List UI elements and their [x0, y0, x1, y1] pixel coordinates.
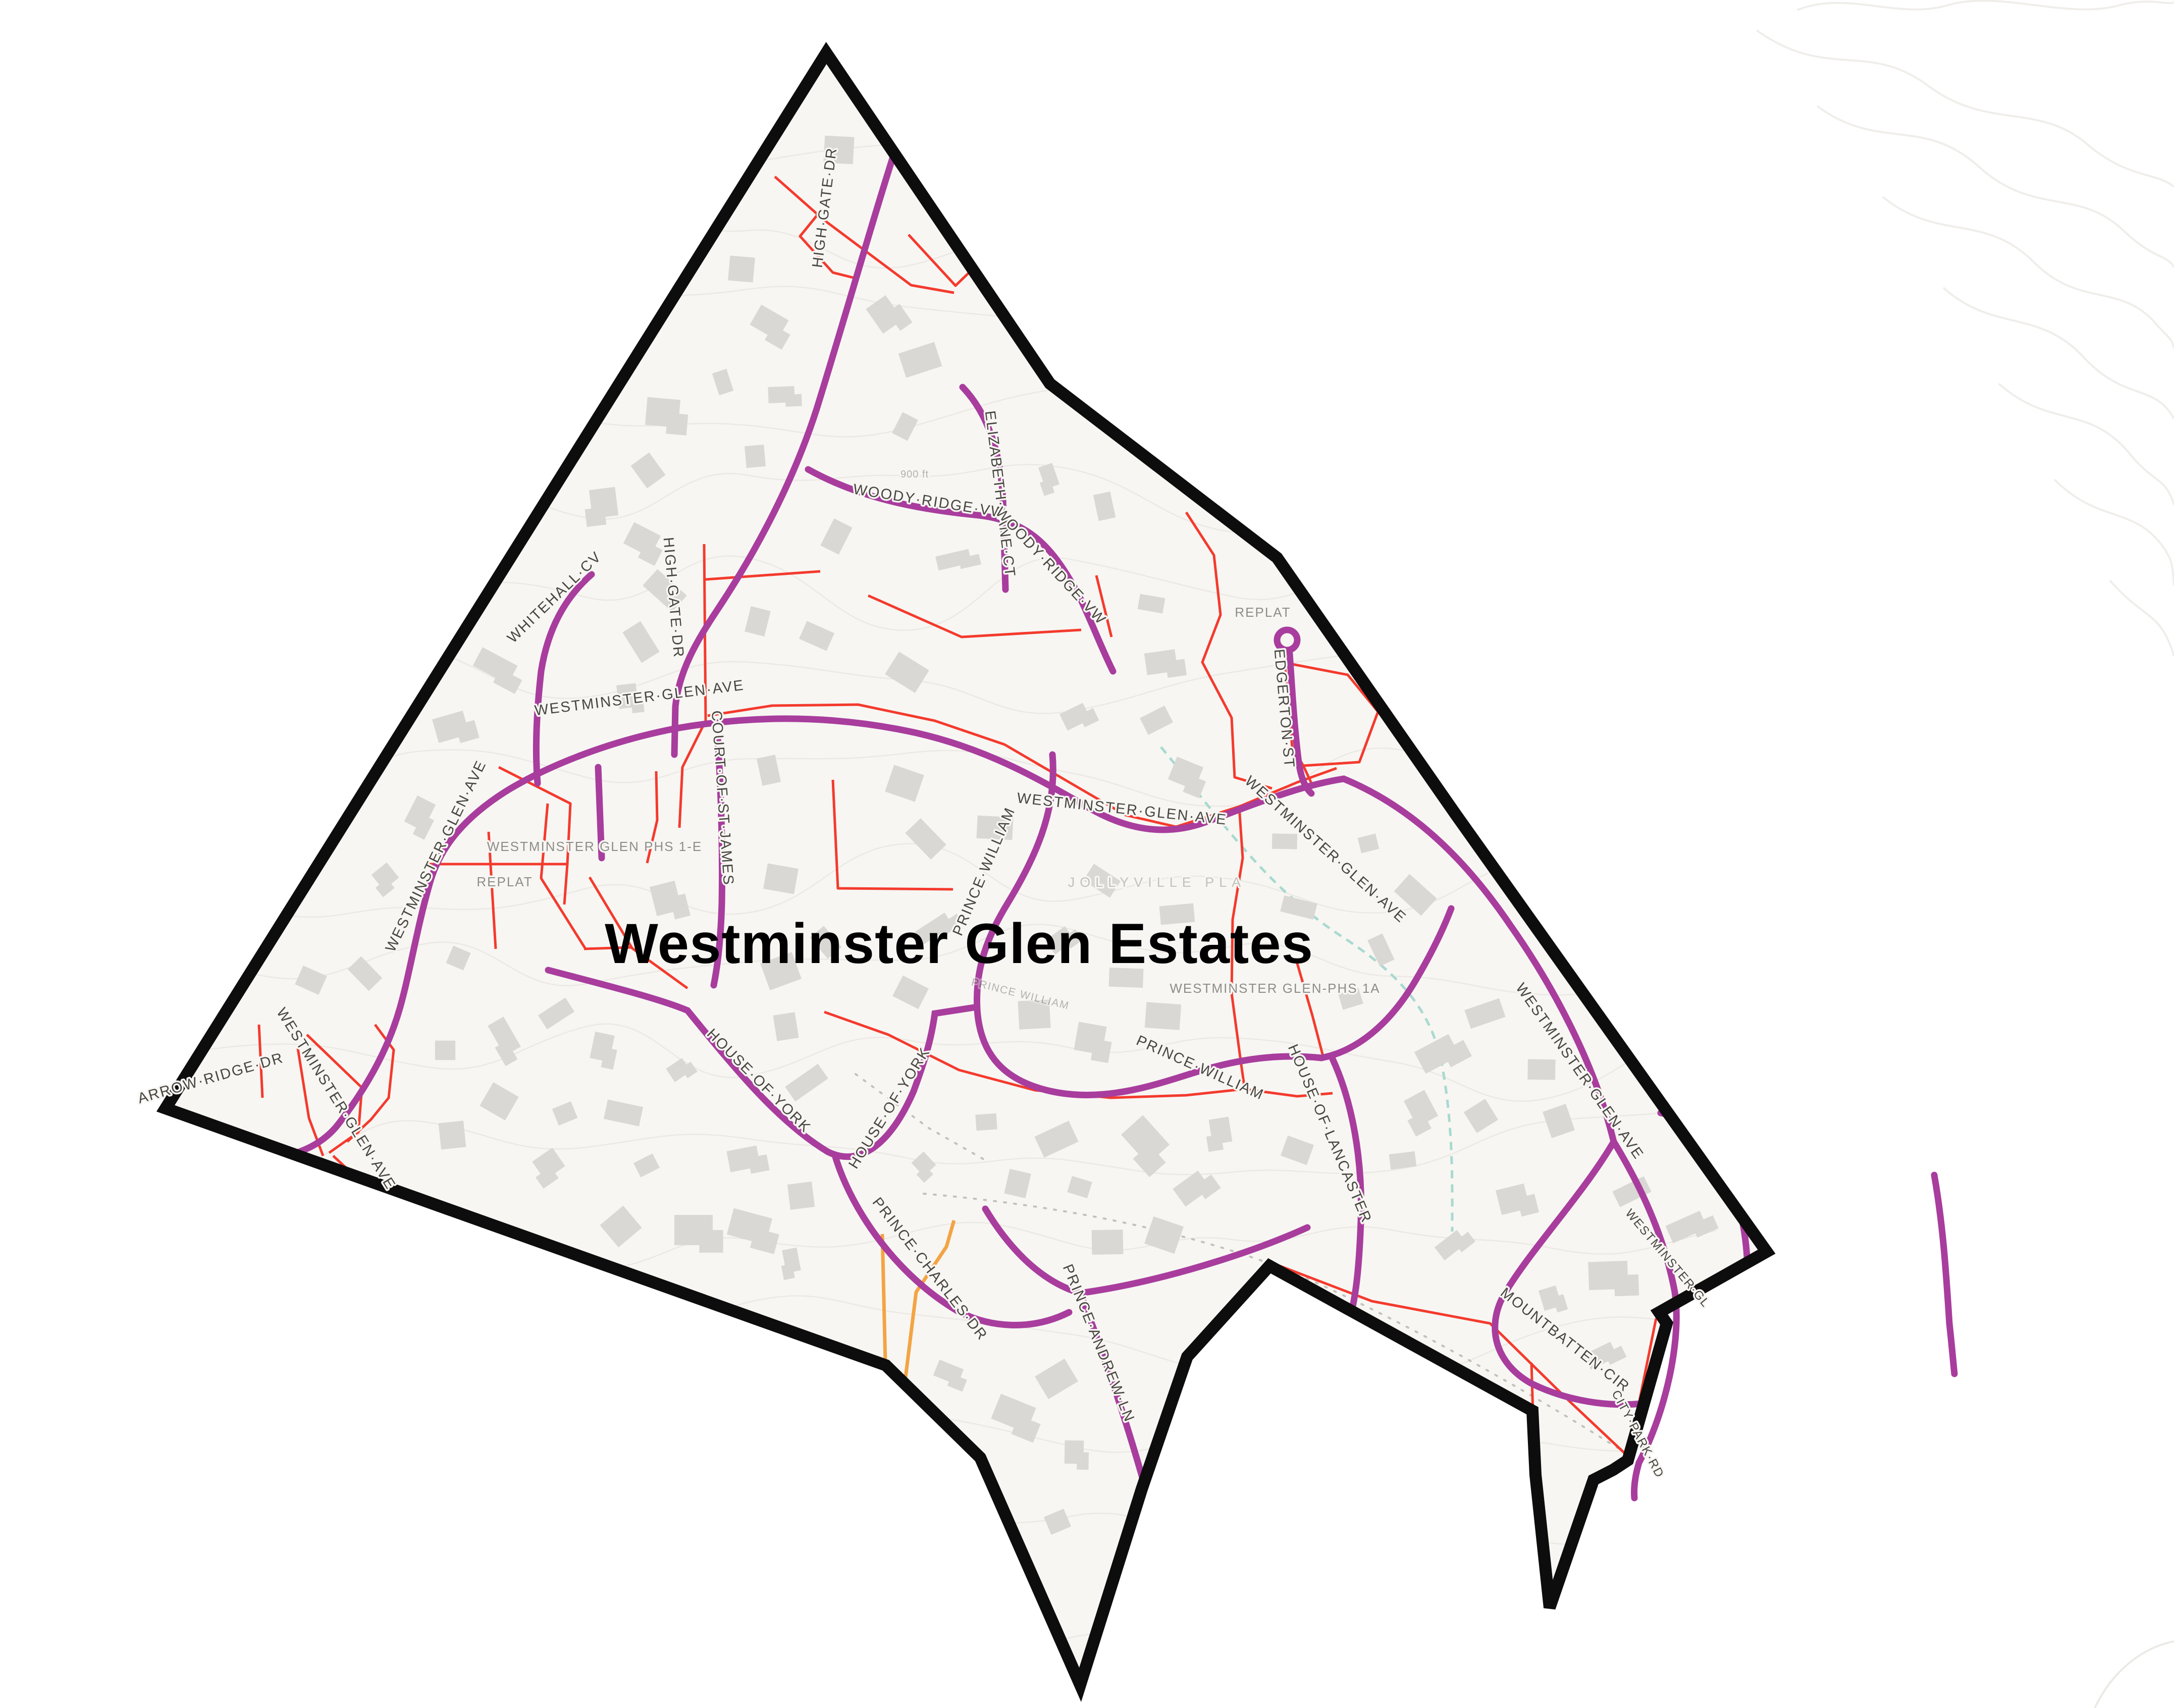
building: [745, 445, 766, 468]
road-city-park-rd: [1934, 1175, 1954, 1374]
outside-contours: [1757, 1, 2174, 656]
building: [763, 864, 799, 894]
building: [435, 1041, 455, 1060]
area-label-westminster-glen-phs-1a: WESTMINSTER GLEN-PHS 1A: [1170, 981, 1380, 996]
building: [1389, 1151, 1416, 1169]
street-label-900-ft: 900 ft: [900, 469, 929, 480]
area-label-replat: REPLAT: [1235, 605, 1291, 620]
building: [1272, 833, 1297, 849]
map-canvas: HIGH·GATE·DRELIZABETH·JANE·CTWOODY·RIDGE…: [0, 0, 2174, 1708]
building: [787, 1182, 815, 1210]
building: [1092, 1230, 1124, 1255]
area-label-replat: REPLAT: [476, 874, 533, 889]
area-label-westminster-glen-phs-1-e: WESTMINSTER GLEN PHS 1-E: [487, 839, 703, 854]
building: [728, 255, 755, 282]
map-page: HIGH·GATE·DRELIZABETH·JANE·CTWOODY·RIDGE…: [0, 0, 2174, 1708]
building: [975, 1113, 997, 1131]
area-label-jollyville-pla: JOLLYVILLE PLA: [1068, 875, 1246, 890]
building: [1527, 1059, 1555, 1080]
outside-contour-corner: [2095, 1641, 2174, 1708]
building: [439, 1120, 466, 1149]
map-title: Westminster Glen Estates: [605, 912, 1313, 975]
building: [1145, 1002, 1181, 1030]
building: [773, 1012, 799, 1041]
